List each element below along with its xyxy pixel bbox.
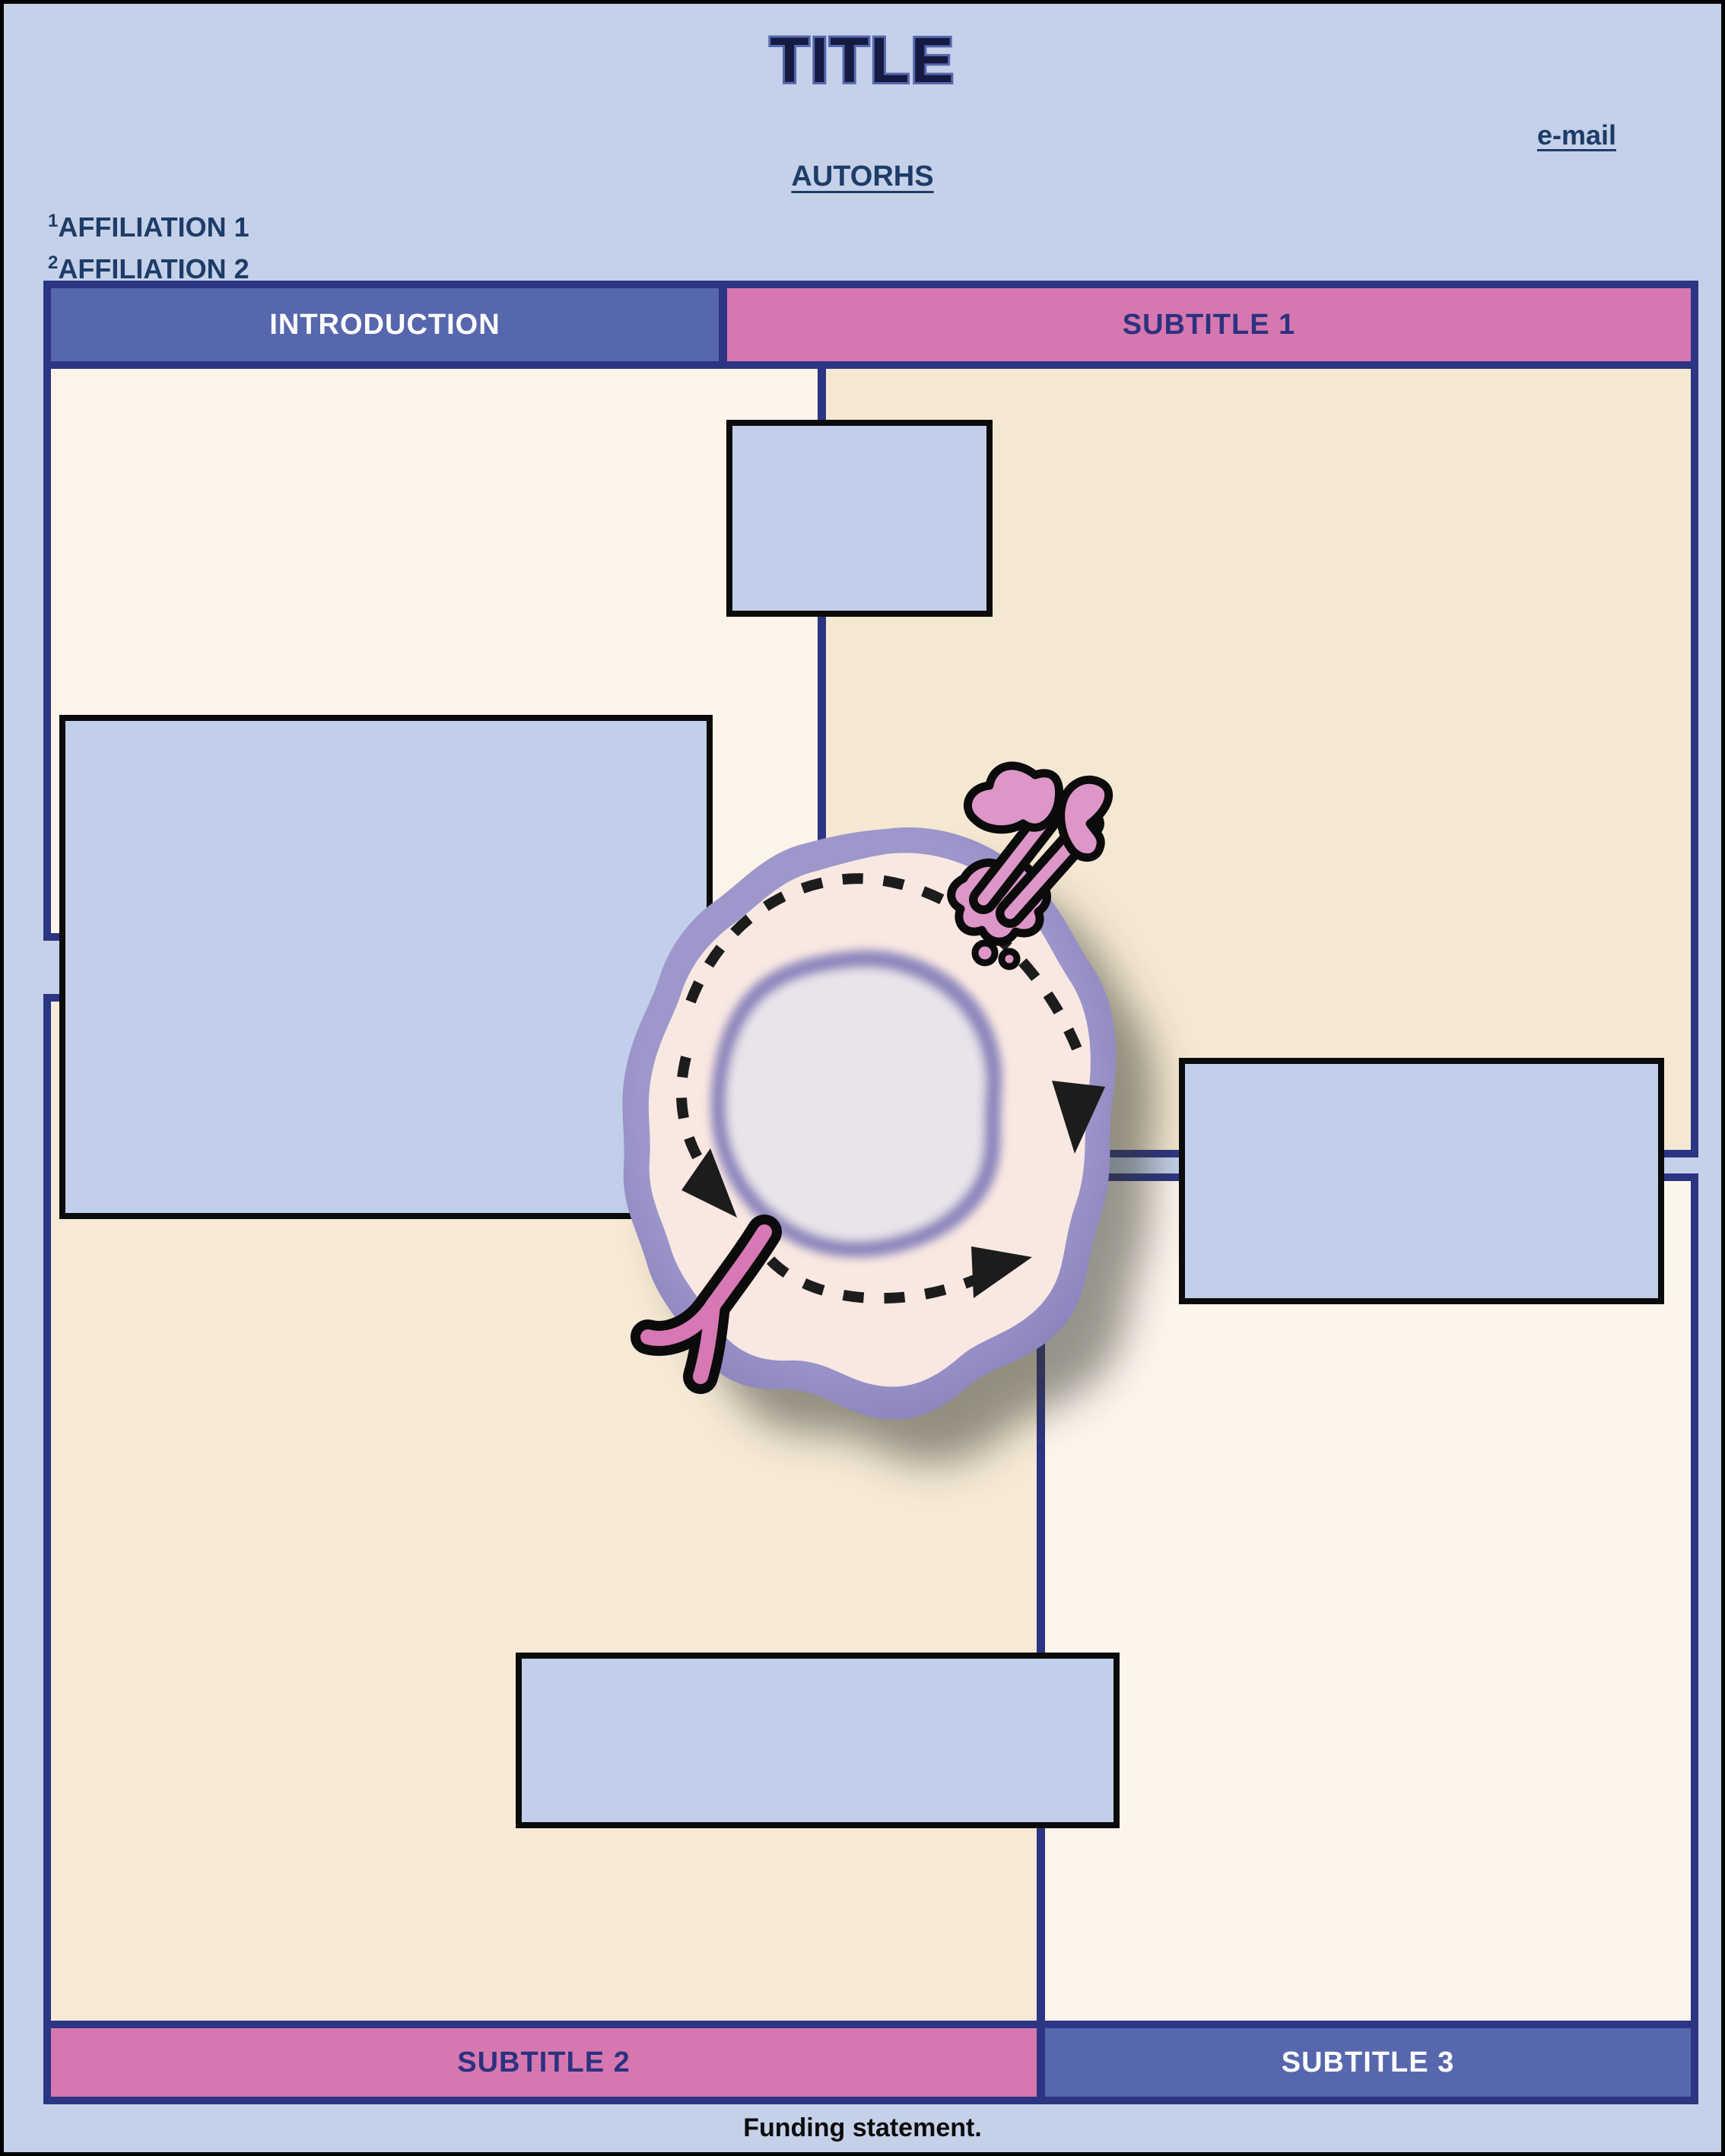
funding-statement: Funding statement. <box>4 2113 1721 2143</box>
section-header-subtitle1: SUBTITLE 1 <box>720 281 1698 369</box>
affiliation-line: 1AFFILIATION 1 <box>48 203 249 245</box>
cell-nucleus <box>710 950 1002 1257</box>
section-header-introduction: INTRODUCTION <box>43 281 726 369</box>
section-header-subtitle2: SUBTITLE 2 <box>43 2021 1044 2104</box>
placeholder-box-top <box>726 420 993 617</box>
poster-canvas: TITLE e-mail AUTORHS 1AFFILIATION 1 2AFF… <box>0 0 1725 2156</box>
cell-diagram <box>506 658 1297 1555</box>
placeholder-box-bottom <box>516 1653 1120 1828</box>
email-link[interactable]: e-mail <box>1537 119 1616 151</box>
affiliations-block: 1AFFILIATION 1 2AFFILIATION 2 <box>48 203 249 287</box>
page-title: TITLE <box>4 24 1721 97</box>
placeholder-box-right <box>1179 1058 1664 1304</box>
section-header-subtitle3: SUBTITLE 3 <box>1037 2021 1698 2104</box>
authors-line: AUTORHS <box>4 160 1721 193</box>
